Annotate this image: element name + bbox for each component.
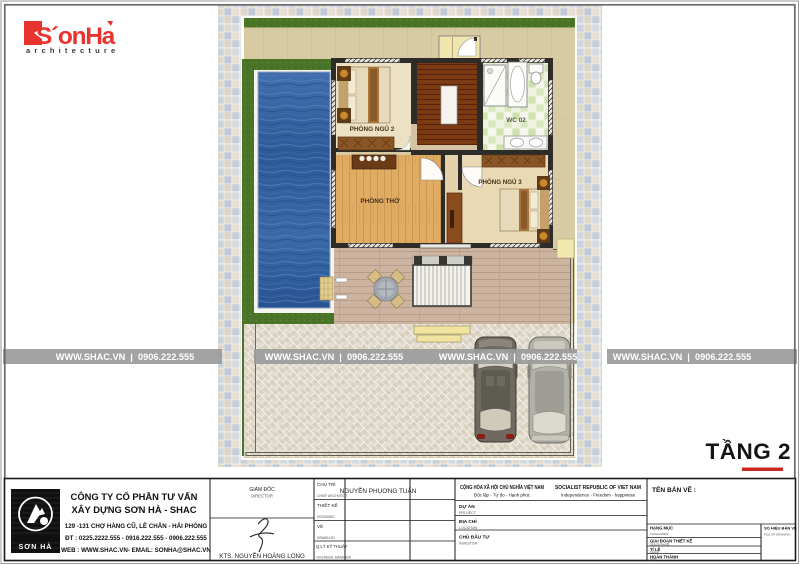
svg-text:FILE OF DRAWING: FILE OF DRAWING xyxy=(764,533,791,537)
svg-text:CỘNG HÒA XÃ HỘI CHỦ NGHĨA VIỆT: CỘNG HÒA XÃ HỘI CHỦ NGHĨA VIỆT NAM xyxy=(460,483,544,491)
svg-text:DESIGNED: DESIGNED xyxy=(317,515,335,519)
svg-text:TÊN BẢN VẼ :: TÊN BẢN VẼ : xyxy=(652,485,696,494)
svg-text:DRAWN BY: DRAWN BY xyxy=(317,536,336,540)
svg-text:ĐỊA CHỈ: ĐỊA CHỈ xyxy=(459,518,477,525)
svg-text:CÔNG TY CỔ PHẦN TƯ VẤN: CÔNG TY CỔ PHẦN TƯ VẤN xyxy=(71,491,198,502)
svg-text:PHÒNG THỜ: PHÒNG THỜ xyxy=(360,196,400,205)
svg-text:SƠN HÀ: SƠN HÀ xyxy=(19,542,53,551)
svg-text:WWW.SHAC.VN | 0906.222.555: WWW.SHAC.VN | 0906.222.555 xyxy=(613,352,751,362)
svg-text:WWW.SHAC.VN | 0906.222.555: WWW.SHAC.VN | 0906.222.555 xyxy=(439,352,577,362)
svg-text:WWW.SHAC.VN | 0906.222.555: WWW.SHAC.VN | 0906.222.555 xyxy=(56,352,194,362)
svg-text:KTS. NGUYỄN HOÀNG LONG: KTS. NGUYỄN HOÀNG LONG xyxy=(219,553,305,560)
svg-text:SOCIALIST REPUBLIC OF VIET NAM: SOCIALIST REPUBLIC OF VIET NAM xyxy=(555,485,641,491)
svg-text:Independence - Freedom - happi: Independence - Freedom - happiness xyxy=(561,493,635,498)
svg-text:Độc lập - Tự do - Hạnh phúc: Độc lập - Tự do - Hạnh phúc xyxy=(474,493,530,498)
svg-text:PHÒNG NGỦ 2: PHÒNG NGỦ 2 xyxy=(350,124,395,133)
svg-text:WC 02: WC 02 xyxy=(506,117,526,124)
svg-text:WWW.SHAC.VN | 0906.222.555: WWW.SHAC.VN | 0906.222.555 xyxy=(265,352,403,362)
svg-text:DESIGN PHASE: DESIGN PHASE xyxy=(650,542,670,546)
svg-text:INVESTOR: INVESTOR xyxy=(459,542,478,546)
svg-text:TECHNICAL MANAGER: TECHNICAL MANAGER xyxy=(316,556,352,560)
svg-text:ĐT : 0225.2222.555 - 0916.222.: ĐT : 0225.2222.555 - 0916.222.555 - 0906… xyxy=(65,535,207,542)
svg-text:PHÒNG NGỦ 3: PHÒNG NGỦ 3 xyxy=(478,178,522,186)
svg-text:HẠNG MỤC: HẠNG MỤC xyxy=(650,526,673,531)
svg-text:architecture: architecture xyxy=(26,46,119,55)
svg-text:Q.LÝ KỸ THUẬT: Q.LÝ KỸ THUẬT xyxy=(316,544,348,549)
svg-text:GIÁM ĐỐC: GIÁM ĐỐC xyxy=(249,486,275,493)
svg-text:VẼ: VẼ xyxy=(317,523,323,529)
svg-text:WEB : WWW.SHAC.VN- EMAIL: SONH: WEB : WWW.SHAC.VN- EMAIL: SONHA@SHAC.VN xyxy=(61,547,211,554)
svg-text:129 -131 CHỢ HÀNG CŨ, LÊ CHÂ: 129 -131 CHỢ HÀNG CŨ, LÊ CHÂN - HẢI PHÒN… xyxy=(65,522,208,530)
svg-text:DIRECTOR: DIRECTOR xyxy=(251,494,273,499)
svg-text:XÂY DỰNG SƠN HÀ - SHAC: XÂY DỰNG SƠN HÀ - SHAC xyxy=(72,504,197,515)
svg-text:DATE: DATE xyxy=(650,558,657,562)
svg-text:TẦNG 2: TẦNG 2 xyxy=(705,439,791,464)
svg-text:PROJECT: PROJECT xyxy=(459,511,477,515)
svg-text:SỐ HIỆU BẢN VẼ: SỐ HIỆU BẢN VẼ xyxy=(764,526,797,531)
svg-text:THIẾT KẾ: THIẾT KẾ xyxy=(317,502,338,508)
svg-text:CATEGORIES: CATEGORIES xyxy=(650,532,668,536)
svg-text:CHỦ TRÌ: CHỦ TRÌ xyxy=(317,481,336,487)
svg-text:LOCATION: LOCATION xyxy=(459,526,478,530)
svg-text:DỰ ÁN: DỰ ÁN xyxy=(459,503,475,510)
svg-text:CHỦ ĐẦU TƯ: CHỦ ĐẦU TƯ xyxy=(459,534,489,541)
